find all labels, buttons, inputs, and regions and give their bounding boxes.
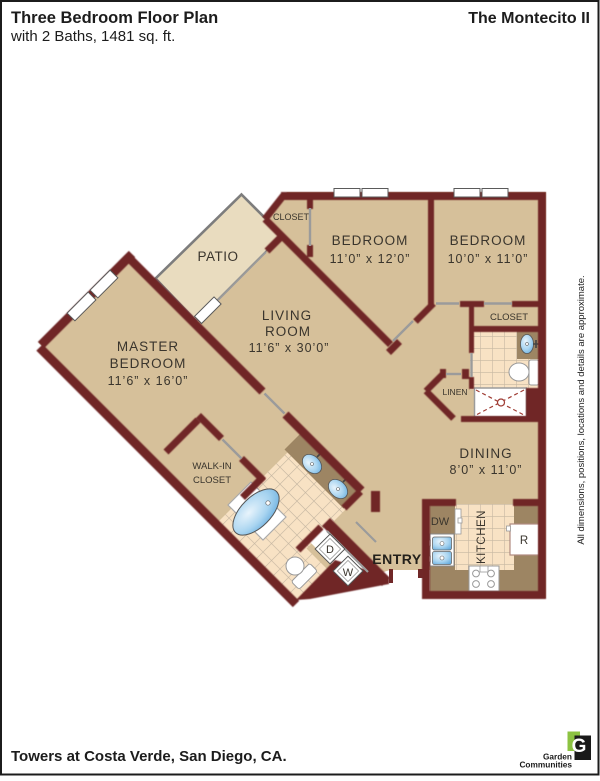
- svg-text:10’0” x 11’0”: 10’0” x 11’0”: [448, 252, 529, 266]
- svg-text:8’0” x 11’0”: 8’0” x 11’0”: [450, 463, 523, 477]
- svg-text:LINEN: LINEN: [442, 387, 467, 397]
- svg-text:R: R: [520, 535, 528, 547]
- svg-text:D: D: [326, 544, 334, 556]
- svg-text:MASTER: MASTER: [117, 339, 179, 354]
- svg-text:ROOM: ROOM: [265, 324, 311, 339]
- svg-text:KITCHEN: KITCHEN: [476, 510, 488, 564]
- svg-text:W: W: [343, 567, 354, 579]
- svg-text:Towers at Costa Verde, San Die: Towers at Costa Verde, San Diego, CA.: [11, 748, 287, 765]
- svg-text:CLOSET: CLOSET: [273, 212, 310, 222]
- svg-text:The Montecito II: The Montecito II: [468, 10, 590, 27]
- svg-text:BEDROOM: BEDROOM: [110, 356, 187, 371]
- svg-text:11’0” x 12’0”: 11’0” x 12’0”: [330, 252, 411, 266]
- svg-text:CLOSET: CLOSET: [193, 475, 231, 486]
- svg-text:All dimensions, positions, loc: All dimensions, positions, locations and…: [576, 275, 587, 544]
- svg-text:11’6” x 30’0”: 11’6” x 30’0”: [249, 341, 330, 355]
- svg-text:Three Bedroom Floor Plan: Three Bedroom Floor Plan: [11, 9, 218, 27]
- svg-text:DINING: DINING: [459, 446, 512, 461]
- svg-text:BEDROOM: BEDROOM: [450, 233, 527, 248]
- svg-text:LIVING: LIVING: [262, 308, 312, 323]
- svg-text:G: G: [572, 736, 587, 757]
- svg-text:11’6” x 16’0”: 11’6” x 16’0”: [108, 374, 189, 388]
- svg-text:Communities: Communities: [519, 760, 572, 770]
- svg-text:DW: DW: [431, 516, 450, 528]
- svg-text:ENTRY: ENTRY: [372, 551, 422, 567]
- svg-text:BEDROOM: BEDROOM: [332, 233, 409, 248]
- svg-text:PATIO: PATIO: [197, 249, 238, 264]
- svg-text:WALK-IN: WALK-IN: [192, 461, 231, 472]
- svg-text:CLOSET: CLOSET: [490, 312, 528, 323]
- svg-text:with 2 Baths, 1481 sq. ft.: with 2 Baths, 1481 sq. ft.: [10, 28, 175, 45]
